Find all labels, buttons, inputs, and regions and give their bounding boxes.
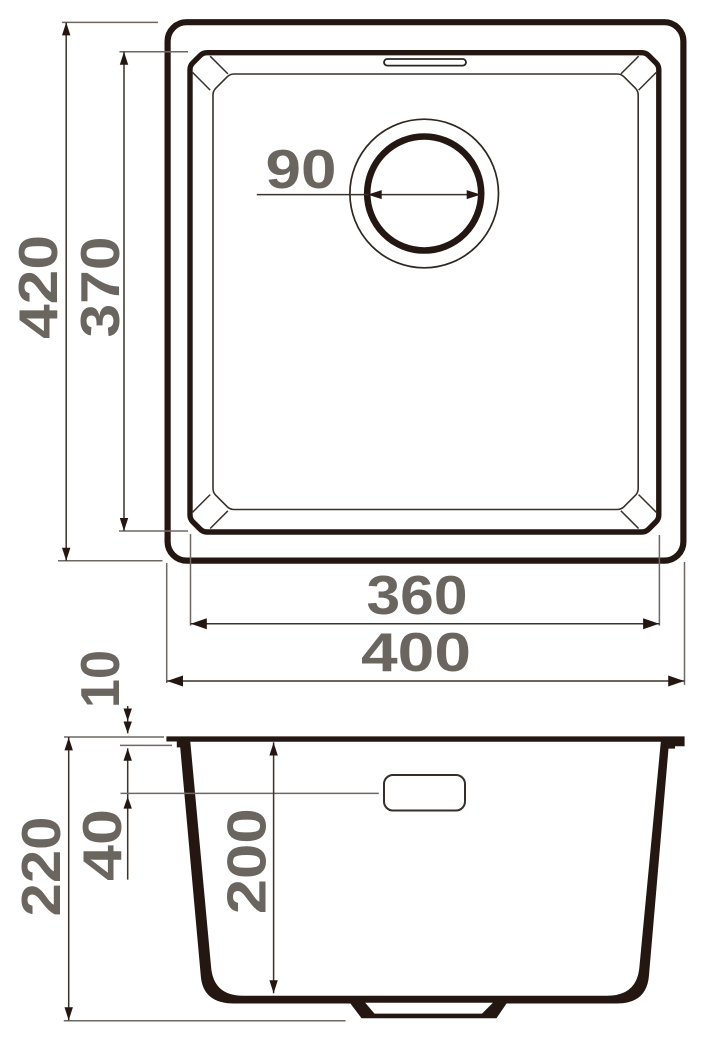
svg-text:200: 200 bbox=[216, 808, 278, 914]
svg-text:370: 370 bbox=[69, 237, 131, 338]
svg-text:400: 400 bbox=[361, 621, 471, 683]
svg-text:360: 360 bbox=[367, 564, 468, 626]
svg-text:420: 420 bbox=[7, 235, 69, 339]
svg-text:40: 40 bbox=[71, 809, 133, 881]
svg-text:10: 10 bbox=[69, 650, 131, 708]
svg-text:220: 220 bbox=[10, 817, 72, 917]
svg-text:90: 90 bbox=[266, 138, 337, 200]
